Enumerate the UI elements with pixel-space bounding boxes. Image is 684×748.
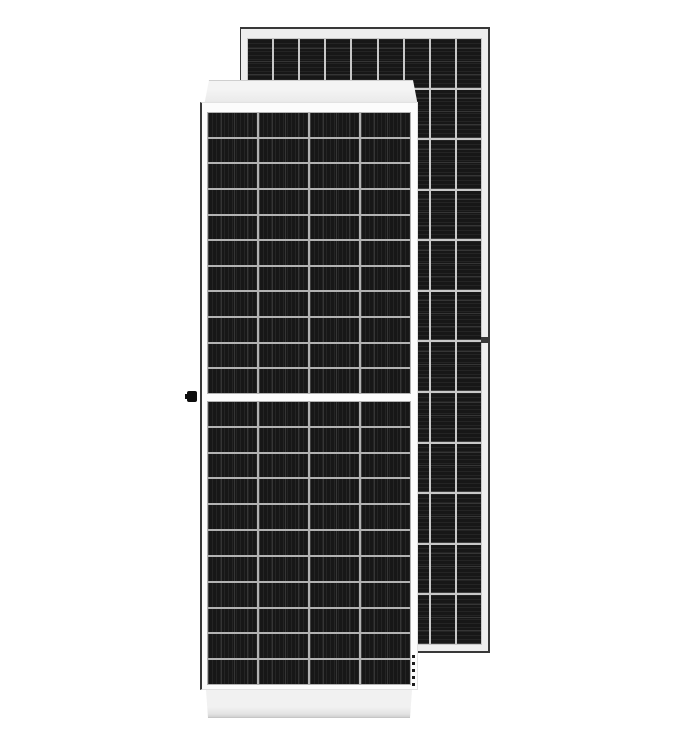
solar-cell: [310, 557, 359, 581]
solar-cell: [361, 428, 410, 452]
solar-cell: [259, 113, 308, 137]
solar-cell: [208, 164, 257, 188]
solar-cell: [310, 267, 359, 291]
solar-cell: [457, 595, 481, 644]
front-panel: [200, 102, 418, 690]
solar-cell: [259, 609, 308, 633]
solar-cell: [361, 557, 410, 581]
solar-cell: [361, 113, 410, 137]
solar-cell: [208, 292, 257, 316]
solar-cell: [361, 139, 410, 163]
solar-cell: [361, 344, 410, 368]
solar-cell: [361, 241, 410, 265]
solar-cell: [310, 454, 359, 478]
solar-cell: [208, 505, 257, 529]
solar-cell: [259, 216, 308, 240]
solar-cell: [361, 402, 410, 426]
solar-cell: [431, 241, 455, 290]
solar-cell: [259, 454, 308, 478]
solar-cell: [208, 344, 257, 368]
solar-cell: [259, 634, 308, 658]
junction-cable: [412, 655, 415, 689]
solar-cell: [457, 90, 481, 139]
solar-cell: [310, 292, 359, 316]
solar-cell: [310, 344, 359, 368]
solar-cell: [208, 531, 257, 555]
solar-cell: [361, 292, 410, 316]
solar-cell: [457, 241, 481, 290]
solar-cell: [457, 191, 481, 240]
solar-cell: [361, 216, 410, 240]
solar-cell: [208, 369, 257, 393]
solar-cell: [431, 444, 455, 493]
solar-cell: [431, 140, 455, 189]
solar-cell: [457, 444, 481, 493]
frame-mounting-hole: [481, 337, 490, 343]
solar-cell: [259, 292, 308, 316]
solar-cell: [259, 267, 308, 291]
solar-cell: [259, 583, 308, 607]
solar-cell: [310, 583, 359, 607]
front-panel-cell-grid-upper: [207, 112, 411, 394]
solar-cell: [310, 479, 359, 503]
solar-cell: [457, 494, 481, 543]
solar-cell: [457, 393, 481, 442]
solar-cell: [310, 609, 359, 633]
solar-cell: [208, 216, 257, 240]
solar-cell: [457, 140, 481, 189]
solar-cell: [431, 393, 455, 442]
solar-cell: [208, 241, 257, 265]
solar-cell: [457, 545, 481, 594]
solar-cell: [208, 267, 257, 291]
solar-cell: [259, 139, 308, 163]
solar-cell: [259, 557, 308, 581]
solar-cell: [259, 318, 308, 342]
solar-cell: [259, 531, 308, 555]
solar-cell: [208, 557, 257, 581]
solar-cell: [457, 342, 481, 391]
solar-cell: [259, 428, 308, 452]
product-image-solar-panels: [0, 0, 684, 748]
solar-cell: [361, 609, 410, 633]
solar-cell: [457, 292, 481, 341]
solar-cell: [259, 241, 308, 265]
solar-cell: [208, 660, 257, 684]
solar-cell: [431, 595, 455, 644]
solar-cell: [361, 267, 410, 291]
solar-cell: [361, 164, 410, 188]
solar-cell: [431, 90, 455, 139]
solar-cell: [208, 428, 257, 452]
solar-cell: [208, 113, 257, 137]
solar-cell: [259, 164, 308, 188]
solar-cell: [310, 190, 359, 214]
solar-cell: [259, 344, 308, 368]
solar-cell: [310, 531, 359, 555]
solar-cell: [310, 660, 359, 684]
solar-cell: [310, 113, 359, 137]
solar-cell: [259, 660, 308, 684]
solar-cell: [361, 505, 410, 529]
solar-cell: [208, 583, 257, 607]
solar-cell: [361, 660, 410, 684]
solar-cell: [310, 139, 359, 163]
solar-cell: [361, 531, 410, 555]
solar-cell: [310, 216, 359, 240]
solar-cell: [431, 191, 455, 240]
solar-cell: [310, 402, 359, 426]
solar-cell: [259, 369, 308, 393]
solar-cell: [361, 479, 410, 503]
solar-cell: [259, 190, 308, 214]
solar-cell: [208, 318, 257, 342]
solar-cell: [310, 318, 359, 342]
solar-cell: [457, 39, 481, 88]
solar-cell: [361, 454, 410, 478]
solar-cell: [208, 609, 257, 633]
solar-cell: [259, 402, 308, 426]
solar-cell: [259, 505, 308, 529]
solar-cell: [208, 454, 257, 478]
front-panel-bottom-frame: [206, 690, 412, 718]
solar-cell: [310, 369, 359, 393]
solar-cell: [310, 428, 359, 452]
solar-cell: [361, 634, 410, 658]
solar-cell: [208, 479, 257, 503]
solar-cell: [431, 292, 455, 341]
solar-cell: [208, 190, 257, 214]
front-panel-cell-grid-lower: [207, 401, 411, 685]
solar-cell: [310, 164, 359, 188]
solar-cell: [361, 369, 410, 393]
solar-cell: [310, 241, 359, 265]
solar-cell: [310, 634, 359, 658]
solar-cell: [431, 39, 455, 88]
solar-cell: [208, 139, 257, 163]
solar-cell: [361, 190, 410, 214]
solar-cell: [259, 479, 308, 503]
solar-cell: [361, 318, 410, 342]
solar-cell: [431, 342, 455, 391]
solar-cell: [208, 402, 257, 426]
solar-cell: [431, 494, 455, 543]
grounding-clip: [187, 391, 197, 402]
solar-cell: [310, 505, 359, 529]
solar-cell: [431, 545, 455, 594]
solar-cell: [361, 583, 410, 607]
solar-cell: [208, 634, 257, 658]
